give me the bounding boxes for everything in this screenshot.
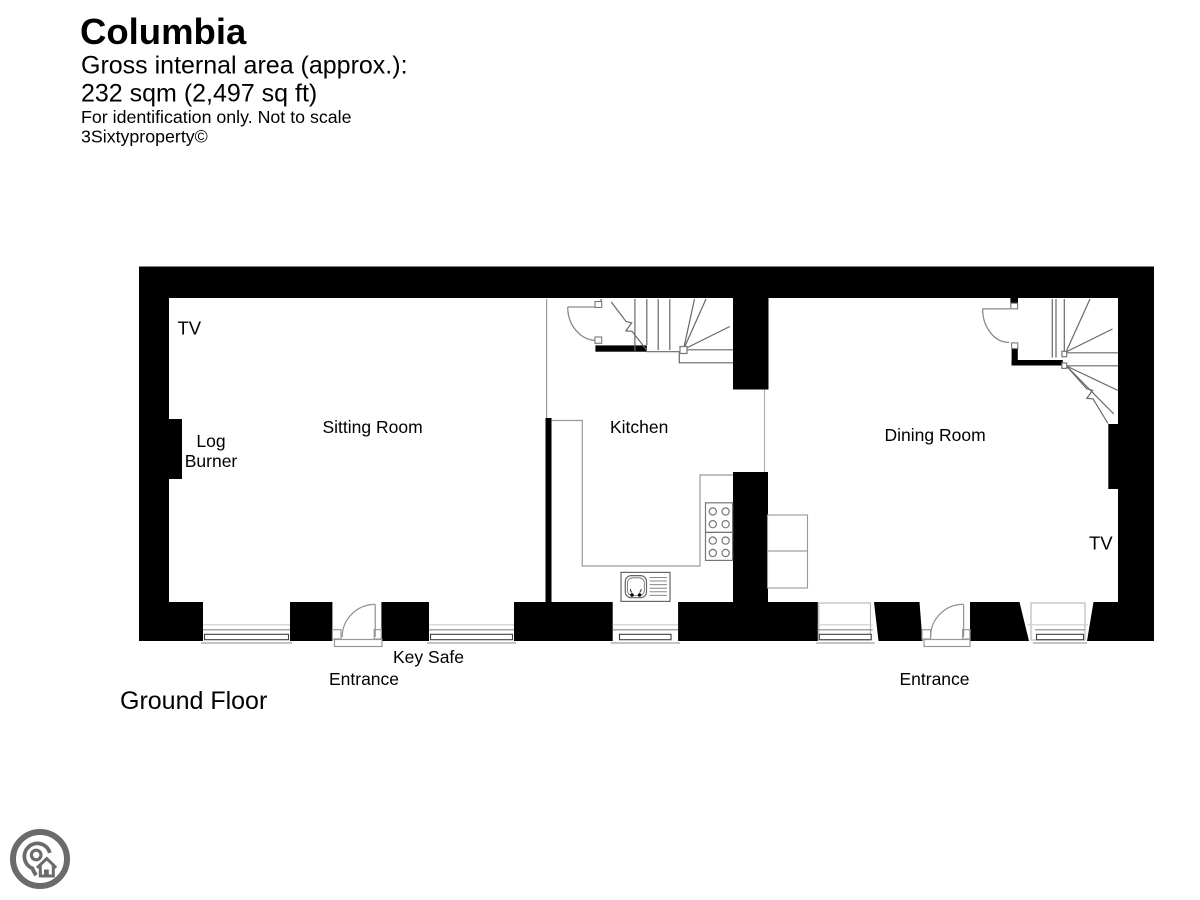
svg-text:Key Safe: Key Safe <box>393 647 464 667</box>
svg-text:Kitchen: Kitchen <box>610 417 668 437</box>
svg-text:Entrance: Entrance <box>899 669 969 689</box>
svg-text:For identification only. Not t: For identification only. Not to scale <box>81 107 352 127</box>
svg-text:Columbia: Columbia <box>80 11 247 52</box>
svg-text:TV: TV <box>1089 533 1113 554</box>
svg-text:TV: TV <box>178 318 202 339</box>
svg-text:Burner: Burner <box>185 451 238 471</box>
svg-text:Dining Room: Dining Room <box>885 425 986 445</box>
svg-text:Gross internal area (approx.):: Gross internal area (approx.): <box>81 52 408 80</box>
svg-text:232 sqm (2,497 sq ft): 232 sqm (2,497 sq ft) <box>81 80 317 108</box>
svg-text:Entrance: Entrance <box>329 669 399 689</box>
svg-text:Log: Log <box>196 431 225 451</box>
svg-text:3Sixtyproperty©: 3Sixtyproperty© <box>81 127 208 147</box>
svg-text:Sitting Room: Sitting Room <box>323 417 423 437</box>
svg-text:Ground Floor: Ground Floor <box>120 687 267 715</box>
